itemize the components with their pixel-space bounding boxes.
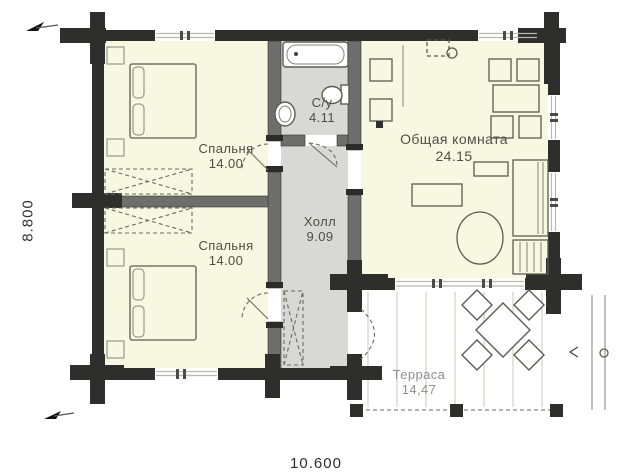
wall-bathroom-hall [281,135,305,146]
bedroom-2-area: 14.00 [188,253,264,268]
window-tick [550,113,558,116]
bedroom-1-name: Спальня [188,141,264,156]
log-joint [90,12,105,64]
terrace-chair-icon [462,290,492,320]
wall-cap [266,166,283,172]
room-label-bedroom-2: Спальня 14.00 [188,238,264,268]
wall-right [548,140,560,172]
wall-cap [266,135,283,141]
wall-cap [346,144,363,150]
bedroom-1-area: 14.00 [188,156,264,171]
railing-post [350,404,363,417]
wall-cap [266,322,283,328]
room-label-bedroom-1: Спальня 14.00 [188,141,264,171]
living-area: 24.15 [366,148,542,165]
window-tick [503,31,506,40]
terrace-furniture [350,290,608,417]
bathroom-name: С/у [300,95,344,110]
room-label-bathroom: С/у 4.11 [300,95,344,125]
bathroom-area: 4.11 [300,110,344,125]
wall-bedroom-hall [268,172,281,288]
living-name: Общая комната [366,131,542,148]
log-joint [265,354,280,398]
wall-bathroom-living [348,41,361,150]
room-label-hall: Холл 9.09 [292,214,348,244]
bedroom-2-name: Спальня [188,238,264,253]
window-tick [489,279,492,288]
bathtub-drain [294,52,298,56]
gate-arrow-icon [570,347,578,357]
window-tick [183,369,186,379]
column-marker [376,121,383,128]
window-tick [550,198,558,201]
hall-name: Холл [292,214,348,229]
log-joint [347,354,362,400]
terrace-chair-icon [462,340,492,370]
window-tick [550,119,558,122]
hall-floor [281,146,348,368]
terrace-chair-icon [514,340,544,370]
log-joint [72,193,122,208]
window-tick [439,279,442,288]
wall-bedroom-hall [268,41,281,141]
gate-marker-icon [600,349,608,357]
railing-post [550,404,563,417]
arrow-icon [26,22,44,31]
window-tick [550,204,558,207]
terrace-chair-icon [514,290,544,320]
wall-cap [266,282,283,288]
window-tick [432,279,435,288]
railing-post [450,404,463,417]
floor-plan: Спальня 14.00 Спальня 14.00 С/у 4.11 Хол… [0,0,634,476]
window-tick [482,279,485,288]
room-label-terrace: Терраса 14,47 [386,367,452,397]
terrace-name: Терраса [386,367,452,382]
log-joint [544,12,559,84]
log-joint [90,354,105,404]
window-tick [180,31,183,40]
terrace-area: 14,47 [386,382,452,397]
wall-top [215,30,478,41]
dimension-height: 8.800 [20,193,37,249]
room-label-living: Общая комната 24.15 [366,131,542,165]
wall-between-bedrooms [104,196,268,207]
window-tick [176,369,179,379]
dimension-width: 10.600 [276,455,356,472]
window-tick [510,31,513,40]
window-tick [187,31,190,40]
wall-cap [346,189,363,195]
hall-area: 9.09 [292,229,348,244]
log-joint [347,260,362,312]
